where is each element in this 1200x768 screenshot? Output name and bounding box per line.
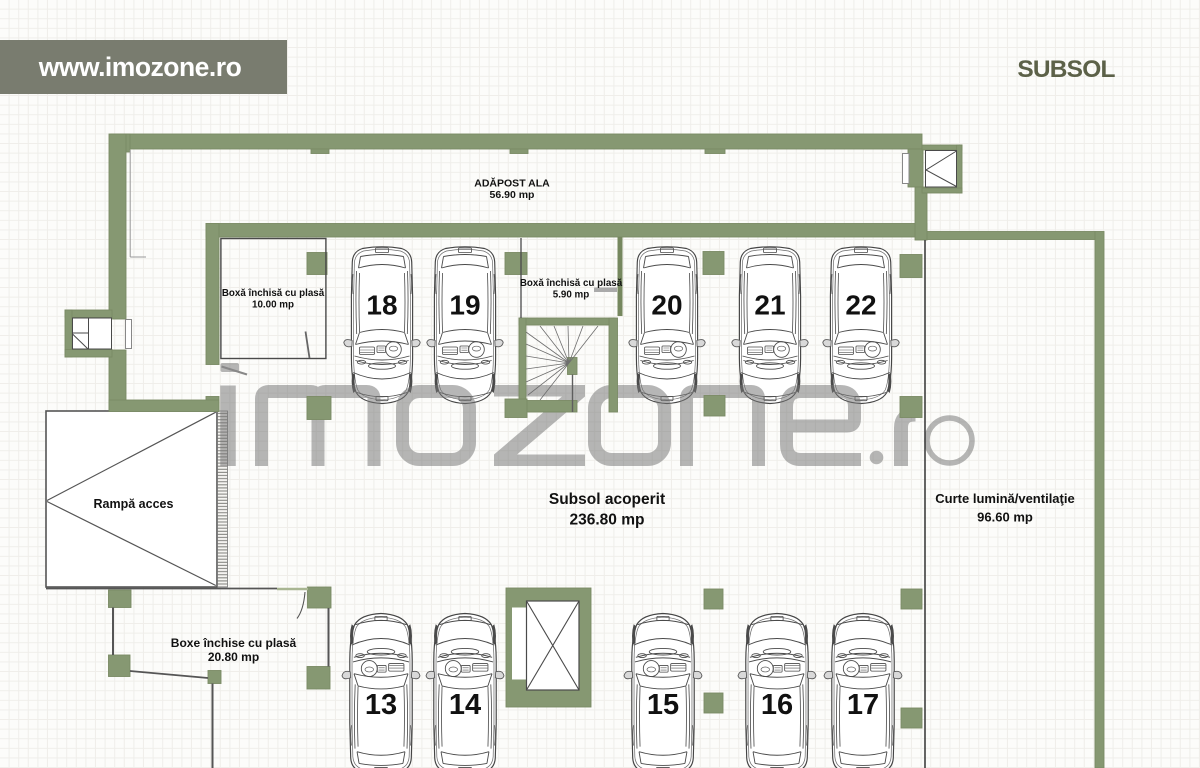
svg-text:www.imozone.ro: www.imozone.ro [38, 52, 242, 82]
svg-text:18: 18 [366, 290, 397, 321]
svg-text:Boxă închisă cu plasă: Boxă închisă cu plasă [520, 278, 623, 289]
svg-text:Boxe închise cu plasă: Boxe închise cu plasă [171, 636, 297, 650]
svg-text:20: 20 [651, 290, 682, 321]
svg-text:16: 16 [761, 689, 793, 721]
svg-text:56.90 mp: 56.90 mp [490, 189, 535, 201]
svg-text:14: 14 [449, 689, 481, 721]
svg-text:236.80 mp: 236.80 mp [570, 512, 645, 529]
svg-text:10.00 mp: 10.00 mp [252, 300, 294, 311]
svg-text:21: 21 [754, 290, 785, 321]
svg-text:Rampă acces: Rampă acces [94, 497, 174, 511]
svg-text:96.60 mp: 96.60 mp [977, 510, 1033, 525]
svg-text:15: 15 [647, 689, 679, 721]
svg-text:Subsol acoperit: Subsol acoperit [549, 491, 665, 508]
svg-text:22: 22 [845, 290, 876, 321]
svg-text:ADĂPOST ALA: ADĂPOST ALA [474, 177, 550, 190]
svg-text:19: 19 [449, 290, 480, 321]
svg-text:17: 17 [847, 689, 879, 721]
svg-text:13: 13 [365, 689, 397, 721]
svg-text:5.90 mp: 5.90 mp [553, 290, 590, 301]
svg-text:20.80 mp: 20.80 mp [208, 650, 259, 664]
svg-text:Curte lumină/ventilaţie: Curte lumină/ventilaţie [935, 491, 1074, 506]
svg-text:Boxă închisă cu plasă: Boxă închisă cu plasă [222, 288, 325, 299]
svg-text:SUBSOL: SUBSOL [1017, 56, 1115, 83]
